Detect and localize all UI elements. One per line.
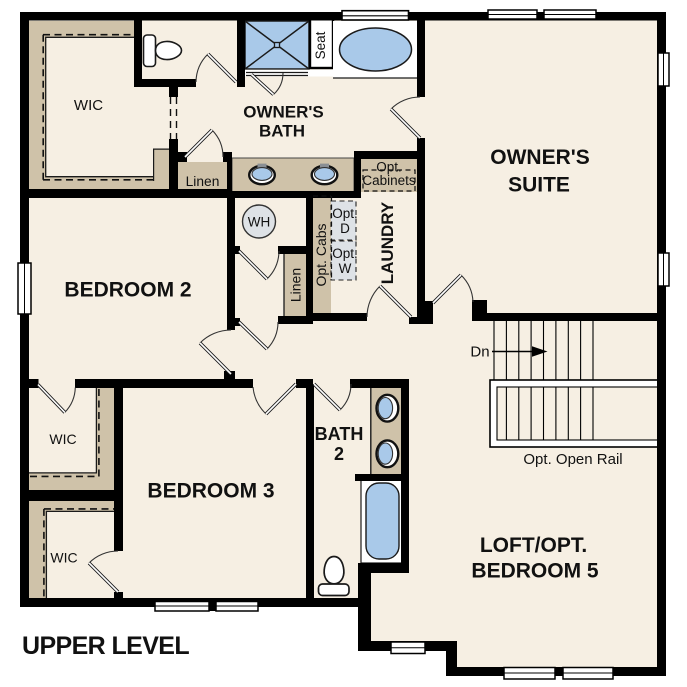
svg-text:UPPER LEVEL: UPPER LEVEL: [22, 632, 189, 660]
svg-text:Seat: Seat: [313, 31, 328, 59]
svg-text:Linen: Linen: [288, 268, 304, 302]
svg-text:WIC: WIC: [49, 431, 76, 447]
svg-text:Dn: Dn: [470, 344, 489, 361]
svg-text:Cabinets: Cabinets: [362, 173, 416, 188]
svg-text:OWNER'S: OWNER'S: [243, 103, 324, 122]
svg-text:WIC: WIC: [50, 550, 77, 566]
svg-text:LOFT/OPT.: LOFT/OPT.: [480, 534, 587, 557]
svg-text:Opt.: Opt.: [332, 206, 358, 221]
svg-text:Opt. Open Rail: Opt. Open Rail: [523, 451, 622, 468]
svg-text:WIC: WIC: [74, 97, 103, 114]
svg-text:Linen: Linen: [186, 174, 220, 189]
svg-text:BEDROOM 2: BEDROOM 2: [64, 279, 191, 302]
svg-text:BEDROOM 3: BEDROOM 3: [147, 480, 274, 503]
svg-text:LAUNDRY: LAUNDRY: [378, 201, 397, 284]
svg-text:SUITE: SUITE: [508, 174, 570, 197]
svg-text:W: W: [339, 261, 352, 276]
svg-text:D: D: [340, 221, 350, 236]
svg-text:Opt.: Opt.: [332, 246, 358, 261]
svg-text:Opt. Cabs: Opt. Cabs: [313, 223, 329, 286]
svg-text:OWNER'S: OWNER'S: [490, 146, 590, 169]
svg-text:BATH: BATH: [259, 122, 305, 141]
svg-text:BEDROOM 5: BEDROOM 5: [471, 560, 599, 583]
svg-text:WH: WH: [248, 215, 271, 230]
svg-text:BATH: BATH: [315, 424, 364, 444]
svg-text:2: 2: [334, 444, 344, 464]
